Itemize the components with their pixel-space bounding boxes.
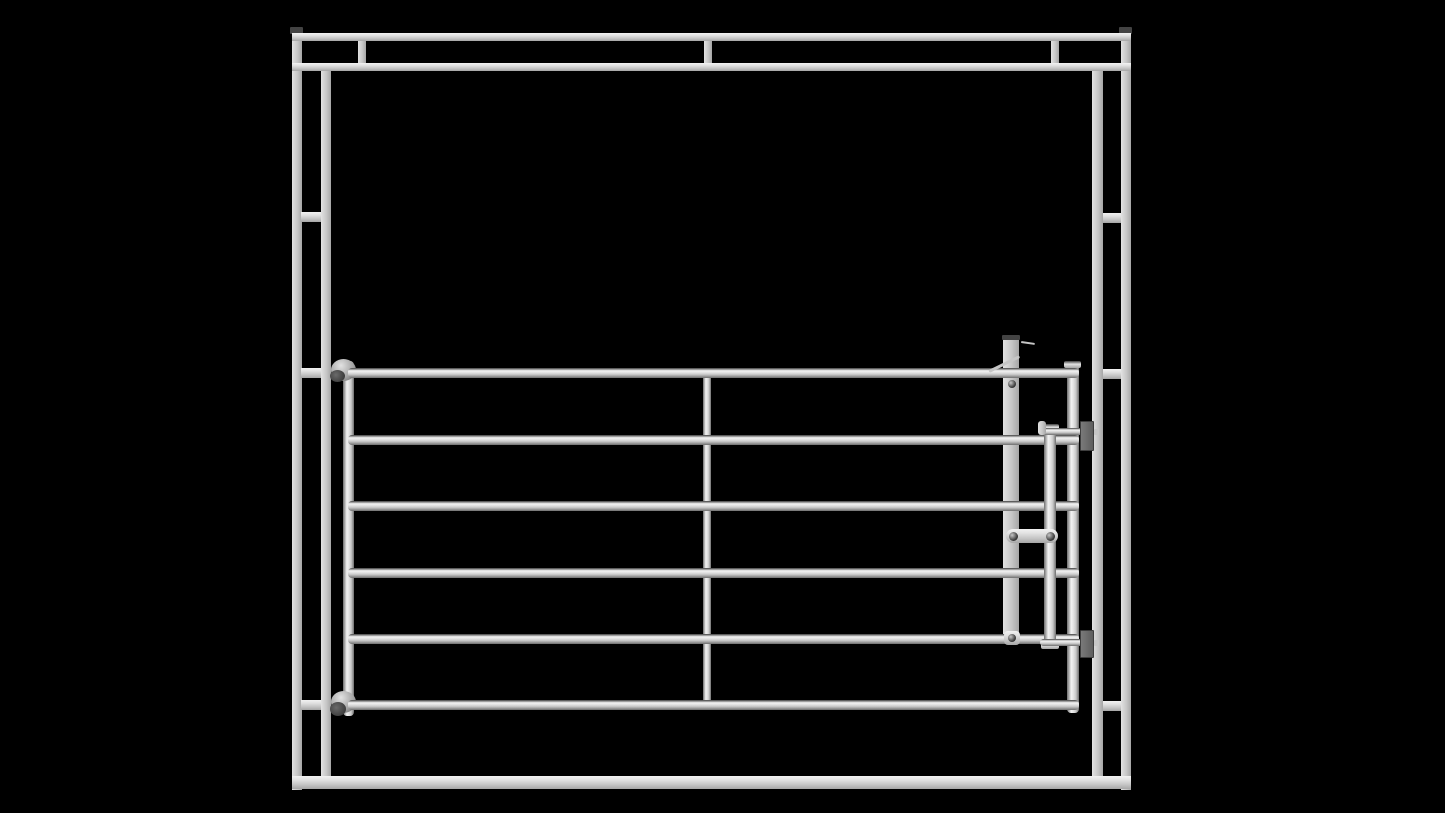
gate-rail-4 [348,568,1079,578]
gate-latch-stile-cap [1064,361,1081,368]
gate-rail-6 [348,700,1079,710]
gate-rail-1 [348,368,1079,378]
gate-hinge-bottom-lug [330,702,346,716]
frame-top-spacer-left [358,41,366,63]
gate-rail-5 [348,634,1079,644]
latch-rod-bottom-tip [1094,640,1099,646]
frame-top-spacer-middle [704,41,712,63]
frame-tie-right-lower [1103,701,1121,711]
latch-rod-top-tip [1094,429,1099,435]
frame-tie-left-upper [301,212,321,222]
frame-top-rail-upper [292,33,1131,41]
frame-outer-post-right [1121,30,1131,790]
latch-post-bolt [1008,380,1016,388]
latch-trigger [1021,341,1035,345]
frame-tie-left-lower [301,700,321,710]
frame-bottom-rail [292,776,1131,789]
gate-middle-brace [703,371,711,708]
frame-tie-left-middle [301,368,321,378]
frame-tie-right-middle [1103,369,1121,379]
gate-hinge-top-lug [330,370,345,382]
frame-inner-post-left [321,71,331,776]
latch-keeper-top [1080,421,1094,451]
frame-tie-right-upper [1103,213,1121,223]
latch-link-bolt-left [1009,532,1018,541]
gate-rail-3 [348,501,1079,511]
latch-keeper-bottom [1080,630,1094,658]
latch-collar-bolt [1008,634,1016,642]
gate-hinge-stile [343,361,354,716]
gate-render-stage [0,0,1445,813]
latch-post-cap [1002,335,1020,340]
latch-link-bolt-right [1046,532,1055,541]
latch-rod-top-handle [1038,421,1046,435]
gate-latch-stile [1067,363,1079,713]
frame-outer-post-left [292,30,302,790]
gate-rail-2 [348,435,1079,445]
frame-top-rail-lower [292,63,1131,71]
frame-top-spacer-right [1051,41,1059,63]
